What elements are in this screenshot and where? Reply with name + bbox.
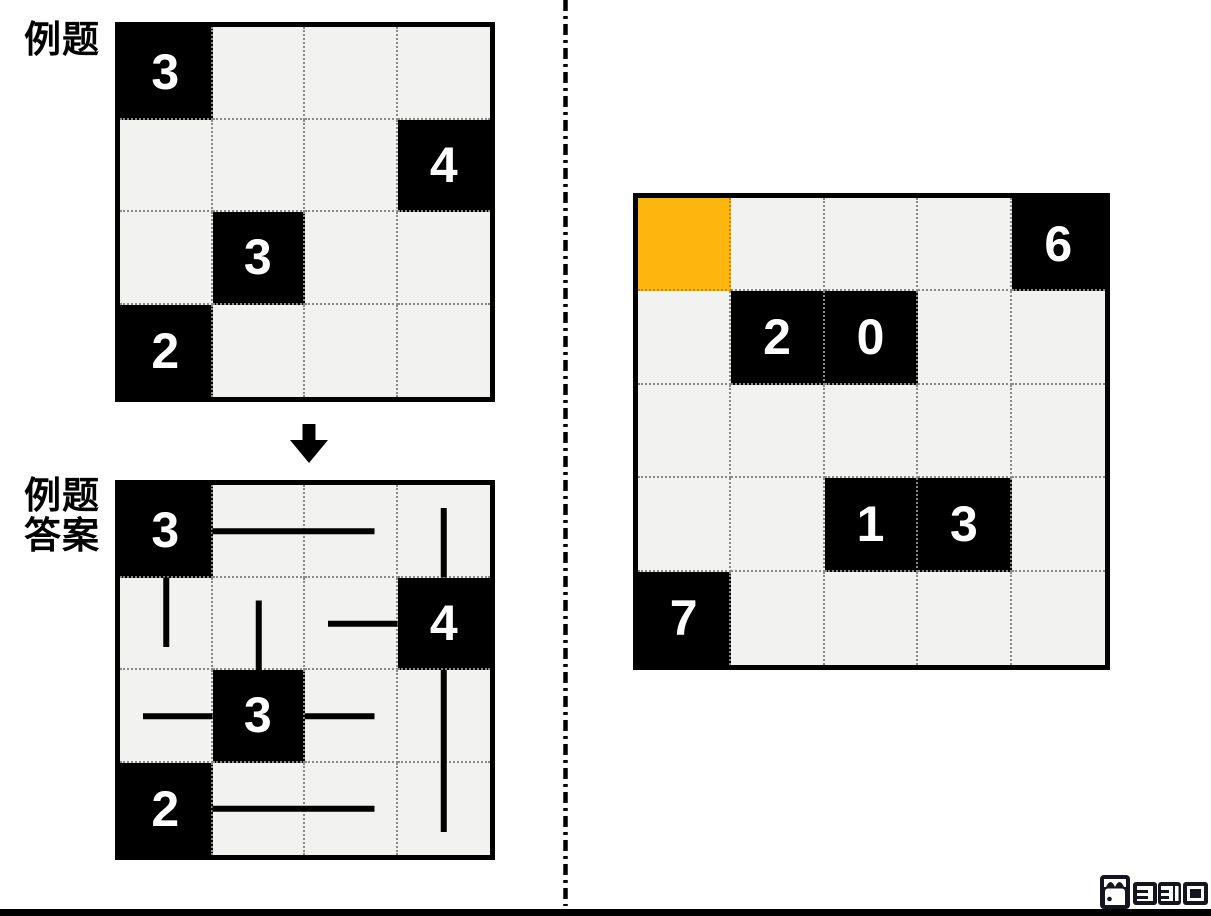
empty-cell[interactable]	[731, 572, 824, 665]
empty-cell	[213, 27, 306, 120]
clue-cell[interactable]: 6	[1012, 198, 1105, 291]
empty-cell[interactable]	[825, 385, 918, 478]
bracket-icon-2	[1158, 882, 1181, 905]
highlight-cell[interactable]	[638, 198, 731, 291]
empty-cell	[305, 120, 398, 213]
square-icon	[1183, 882, 1208, 905]
empty-cell[interactable]	[918, 198, 1011, 291]
example-answer-label: 例题 答案	[24, 476, 100, 556]
clue-cell[interactable]: 0	[825, 291, 918, 384]
empty-cell[interactable]	[638, 478, 731, 571]
clue-cell: 3	[120, 27, 213, 120]
example-grid: 3432	[115, 22, 495, 402]
footer-bar	[0, 909, 1211, 916]
empty-cell	[120, 120, 213, 213]
empty-cell	[213, 305, 306, 398]
clue-cell: 2	[120, 305, 213, 398]
puzzle-page: 例题 例题 答案 3432 3432 620137	[0, 0, 1211, 916]
empty-cell[interactable]	[825, 572, 918, 665]
clue-cell: 3	[213, 212, 306, 305]
empty-cell	[398, 27, 491, 120]
empty-cell[interactable]	[731, 198, 824, 291]
empty-cell	[120, 212, 213, 305]
empty-cell[interactable]	[1012, 572, 1105, 665]
bracket-icon-1	[1133, 882, 1157, 905]
empty-cell[interactable]	[1012, 291, 1105, 384]
footer-logo	[1097, 872, 1211, 912]
example-label: 例题	[24, 20, 100, 60]
clue-cell[interactable]: 1	[825, 478, 918, 571]
empty-cell[interactable]	[1012, 478, 1105, 571]
example-answer-label-line2: 答案	[24, 516, 100, 556]
down-arrow-icon	[290, 424, 328, 463]
empty-cell	[398, 212, 491, 305]
door-logo-icon	[1100, 875, 1130, 909]
empty-cell[interactable]	[1012, 385, 1105, 478]
empty-cell	[213, 120, 306, 213]
answer-line-overlay	[115, 480, 495, 860]
empty-cell[interactable]	[731, 385, 824, 478]
clue-cell[interactable]: 2	[731, 291, 824, 384]
empty-cell[interactable]	[638, 385, 731, 478]
empty-cell	[305, 212, 398, 305]
empty-cell[interactable]	[638, 291, 731, 384]
puzzle-grid[interactable]: 620137	[633, 193, 1110, 670]
empty-cell[interactable]	[825, 198, 918, 291]
empty-cell	[305, 27, 398, 120]
clue-cell[interactable]: 3	[918, 478, 1011, 571]
empty-cell	[305, 305, 398, 398]
example-answer-label-line1: 例题	[24, 476, 100, 516]
empty-cell[interactable]	[731, 478, 824, 571]
clue-cell[interactable]: 7	[638, 572, 731, 665]
empty-cell	[398, 305, 491, 398]
empty-cell[interactable]	[918, 291, 1011, 384]
clue-cell: 4	[398, 120, 491, 213]
empty-cell[interactable]	[918, 572, 1011, 665]
empty-cell[interactable]	[918, 385, 1011, 478]
